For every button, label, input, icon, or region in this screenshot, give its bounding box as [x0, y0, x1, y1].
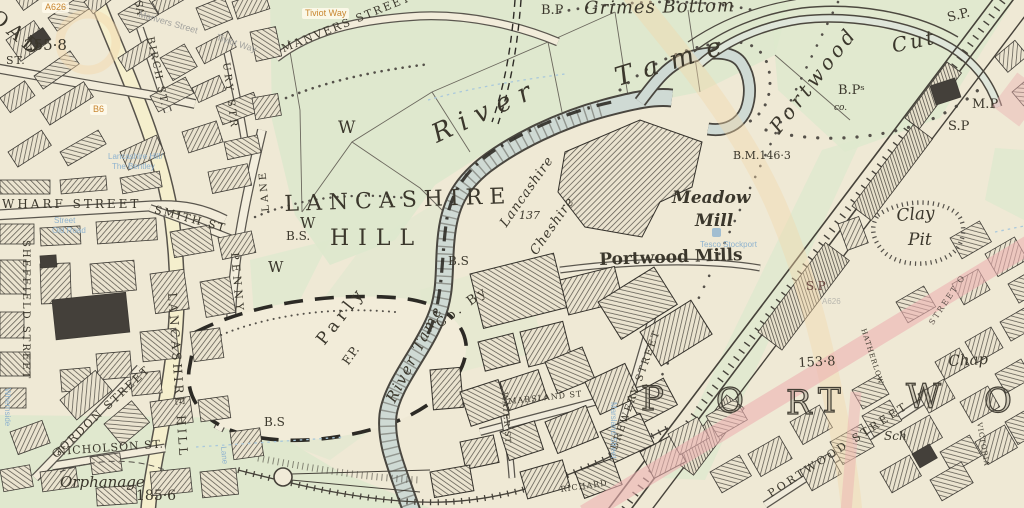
boundary-stone-2: B.S	[448, 255, 469, 267]
route-chip-tiviot-way: Tiviot Way	[302, 8, 349, 19]
meadow-mill-label-1: Meadow	[672, 190, 751, 207]
well-marker-3: W	[268, 260, 283, 275]
boundary-stone-3: B.S	[264, 416, 285, 428]
mp-marker: M.P	[972, 98, 998, 111]
clay-pit-label-2: Pit	[908, 232, 932, 249]
spot-height-153: 153·8	[798, 355, 836, 370]
overlay-poi-bentley-line1: Lancashire Hill/	[108, 152, 163, 162]
street-label-sheffield: SHEFFIELD STREET	[20, 240, 30, 380]
route-chip-b6: B6	[90, 104, 107, 115]
overlay-street-marsland: Marsland Street	[608, 402, 618, 458]
bp-marker-top: B.P	[541, 4, 563, 17]
overlay-poi-tesco: Tesco Stockport	[700, 240, 757, 250]
district-letter-w: W	[906, 380, 941, 414]
benchmark-146: B.M.146·3	[733, 150, 791, 161]
clay-pit-label-1: Clay	[896, 205, 935, 225]
orphanage-label: Orphanage	[60, 475, 145, 490]
grimes-bottom-label: Grimes Bottom	[584, 0, 735, 18]
portwood-mills-label: Portwood Mills	[599, 247, 743, 269]
school-label: Sch	[884, 430, 907, 442]
overlay-poi-oldroad-line1: Street	[54, 216, 75, 226]
overlay-street-lane: Lane	[218, 446, 229, 465]
chapel-label: Chap	[948, 352, 988, 369]
spot-height-255: 255·8	[24, 38, 67, 53]
district-label-hill: HILL	[330, 228, 423, 250]
boundary-stone-1: B.S.	[286, 230, 310, 242]
overlay-street-whernside: Whernside	[2, 388, 12, 426]
district-letter-t: T	[818, 384, 841, 418]
overlay-poi-oldroad-line2: Old Road	[52, 226, 86, 236]
route-chip-a626: A626	[42, 2, 69, 13]
street-label-st: ST.	[6, 55, 26, 66]
parcel-number-137: 137	[519, 210, 540, 221]
co-small-marker: co.	[834, 104, 847, 113]
overlay-poi-bentley-line2: The Bentley	[112, 162, 155, 172]
bps-marker: B.Pˢ	[838, 84, 865, 97]
district-letter-p: P	[641, 382, 664, 416]
district-letter-o1: O	[716, 384, 744, 418]
map-viewport[interactable]: OAD 255·8 ST. SA BIRCH ST. URY STR MANVE…	[0, 0, 1024, 508]
well-marker-1: W	[338, 120, 355, 137]
street-label-wharf: WHARF STREET	[2, 198, 141, 210]
district-letter-r: R	[786, 386, 812, 420]
sp-marker-mid: S.P	[806, 280, 826, 292]
supermarket-poi-icon	[712, 228, 721, 237]
sp-marker-right: S.P	[948, 120, 969, 133]
spot-height-185: 185·6	[136, 489, 176, 503]
district-letter-o2: O	[984, 384, 1012, 418]
overlay-route-a626-faint: A626	[822, 298, 841, 306]
